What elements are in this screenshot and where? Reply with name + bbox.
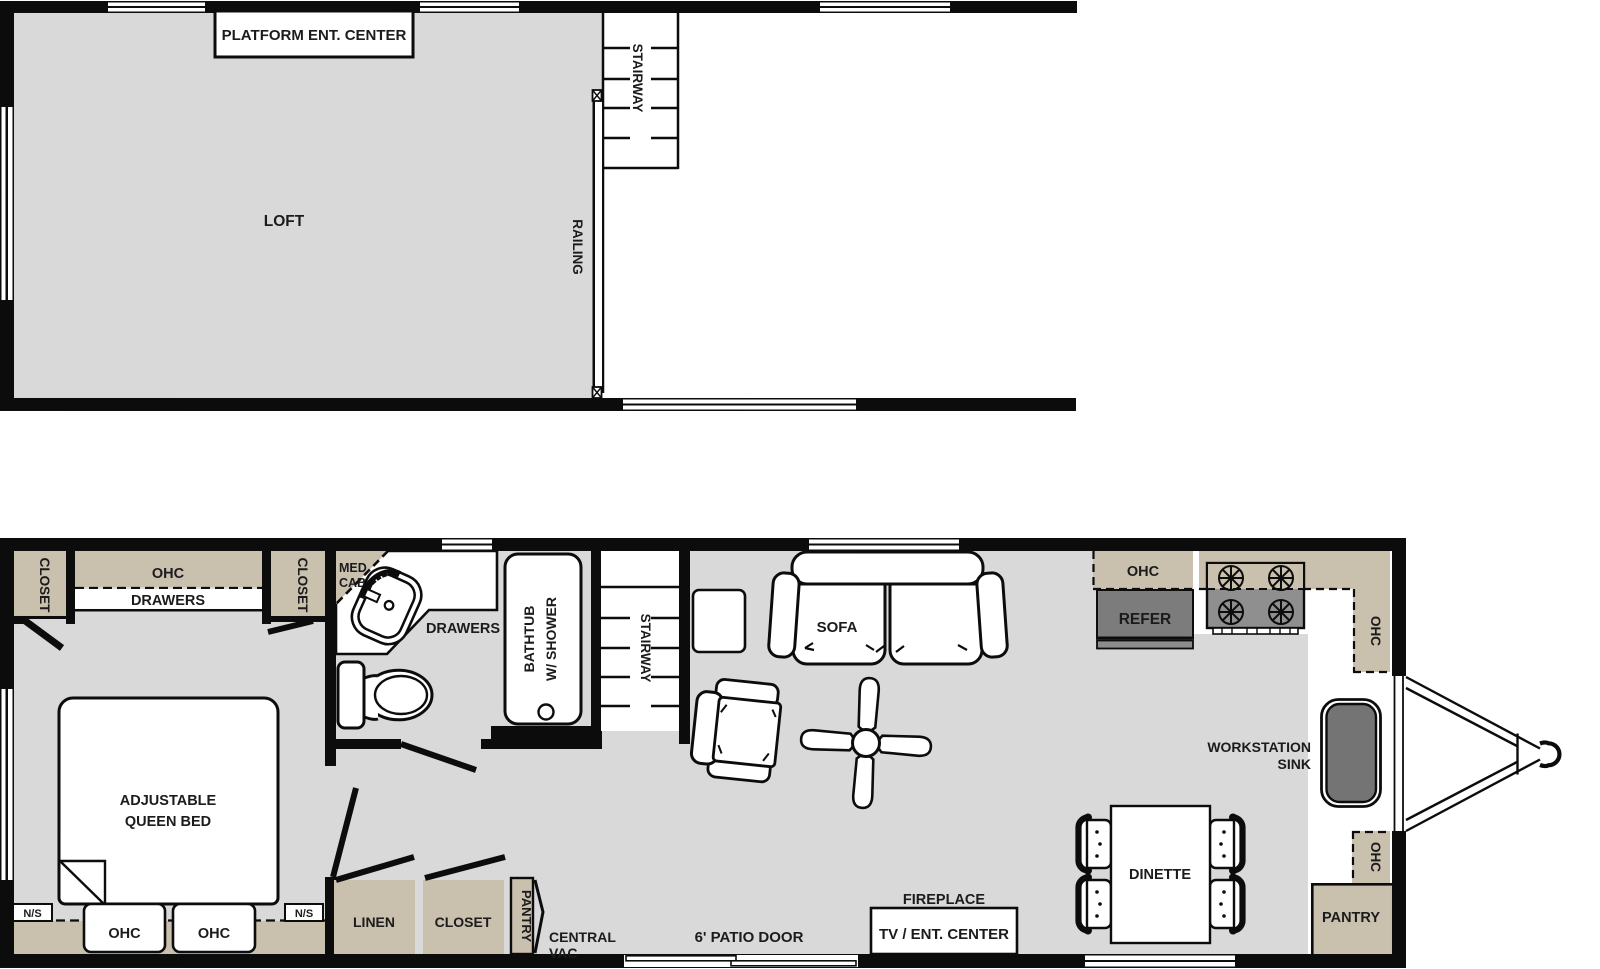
svg-text:REFER: REFER	[1119, 611, 1172, 628]
svg-text:CLOSET: CLOSET	[37, 558, 52, 614]
svg-text:CLOSET: CLOSET	[295, 558, 310, 614]
svg-text:RAILING: RAILING	[570, 219, 585, 275]
svg-text:CLOSET: CLOSET	[435, 914, 492, 930]
svg-text:VAC: VAC	[549, 945, 578, 961]
svg-text:DINETTE: DINETTE	[1129, 867, 1191, 883]
svg-text:W/ SHOWER: W/ SHOWER	[543, 597, 559, 681]
svg-text:TV / ENT. CENTER: TV / ENT. CENTER	[879, 926, 1009, 943]
svg-text:ADJUSTABLE: ADJUSTABLE	[120, 793, 217, 809]
svg-text:LINEN: LINEN	[353, 914, 395, 930]
svg-text:DRAWERS: DRAWERS	[426, 621, 500, 637]
svg-text:FIREPLACE: FIREPLACE	[903, 892, 986, 908]
svg-text:6' PATIO DOOR: 6' PATIO DOOR	[695, 929, 804, 946]
svg-text:OHC: OHC	[108, 926, 141, 942]
svg-text:OHC: OHC	[1368, 842, 1383, 872]
svg-text:LOFT: LOFT	[264, 213, 305, 230]
svg-text:STAIRWAY: STAIRWAY	[630, 44, 645, 113]
svg-text:MED.: MED.	[339, 561, 370, 575]
svg-text:PLATFORM ENT. CENTER: PLATFORM ENT. CENTER	[222, 27, 407, 44]
svg-text:PANTRY: PANTRY	[1322, 910, 1380, 926]
svg-text:DRAWERS: DRAWERS	[131, 593, 205, 609]
svg-text:PANTRY: PANTRY	[519, 890, 534, 942]
svg-text:OHC: OHC	[152, 566, 185, 582]
svg-text:QUEEN BED: QUEEN BED	[125, 814, 211, 830]
svg-text:OHC: OHC	[1127, 564, 1160, 580]
svg-text:N/S: N/S	[23, 908, 41, 920]
svg-text:CENTRAL: CENTRAL	[549, 929, 616, 945]
svg-text:OHC: OHC	[198, 926, 231, 942]
svg-text:STAIRWAY: STAIRWAY	[638, 614, 653, 683]
svg-text:SINK: SINK	[1278, 756, 1311, 772]
svg-text:BATHTUB: BATHTUB	[521, 606, 537, 673]
svg-text:SOFA: SOFA	[817, 619, 858, 636]
svg-text:OHC: OHC	[1368, 616, 1383, 646]
svg-text:WORKSTATION: WORKSTATION	[1207, 739, 1311, 755]
svg-text:N/S: N/S	[295, 908, 313, 920]
